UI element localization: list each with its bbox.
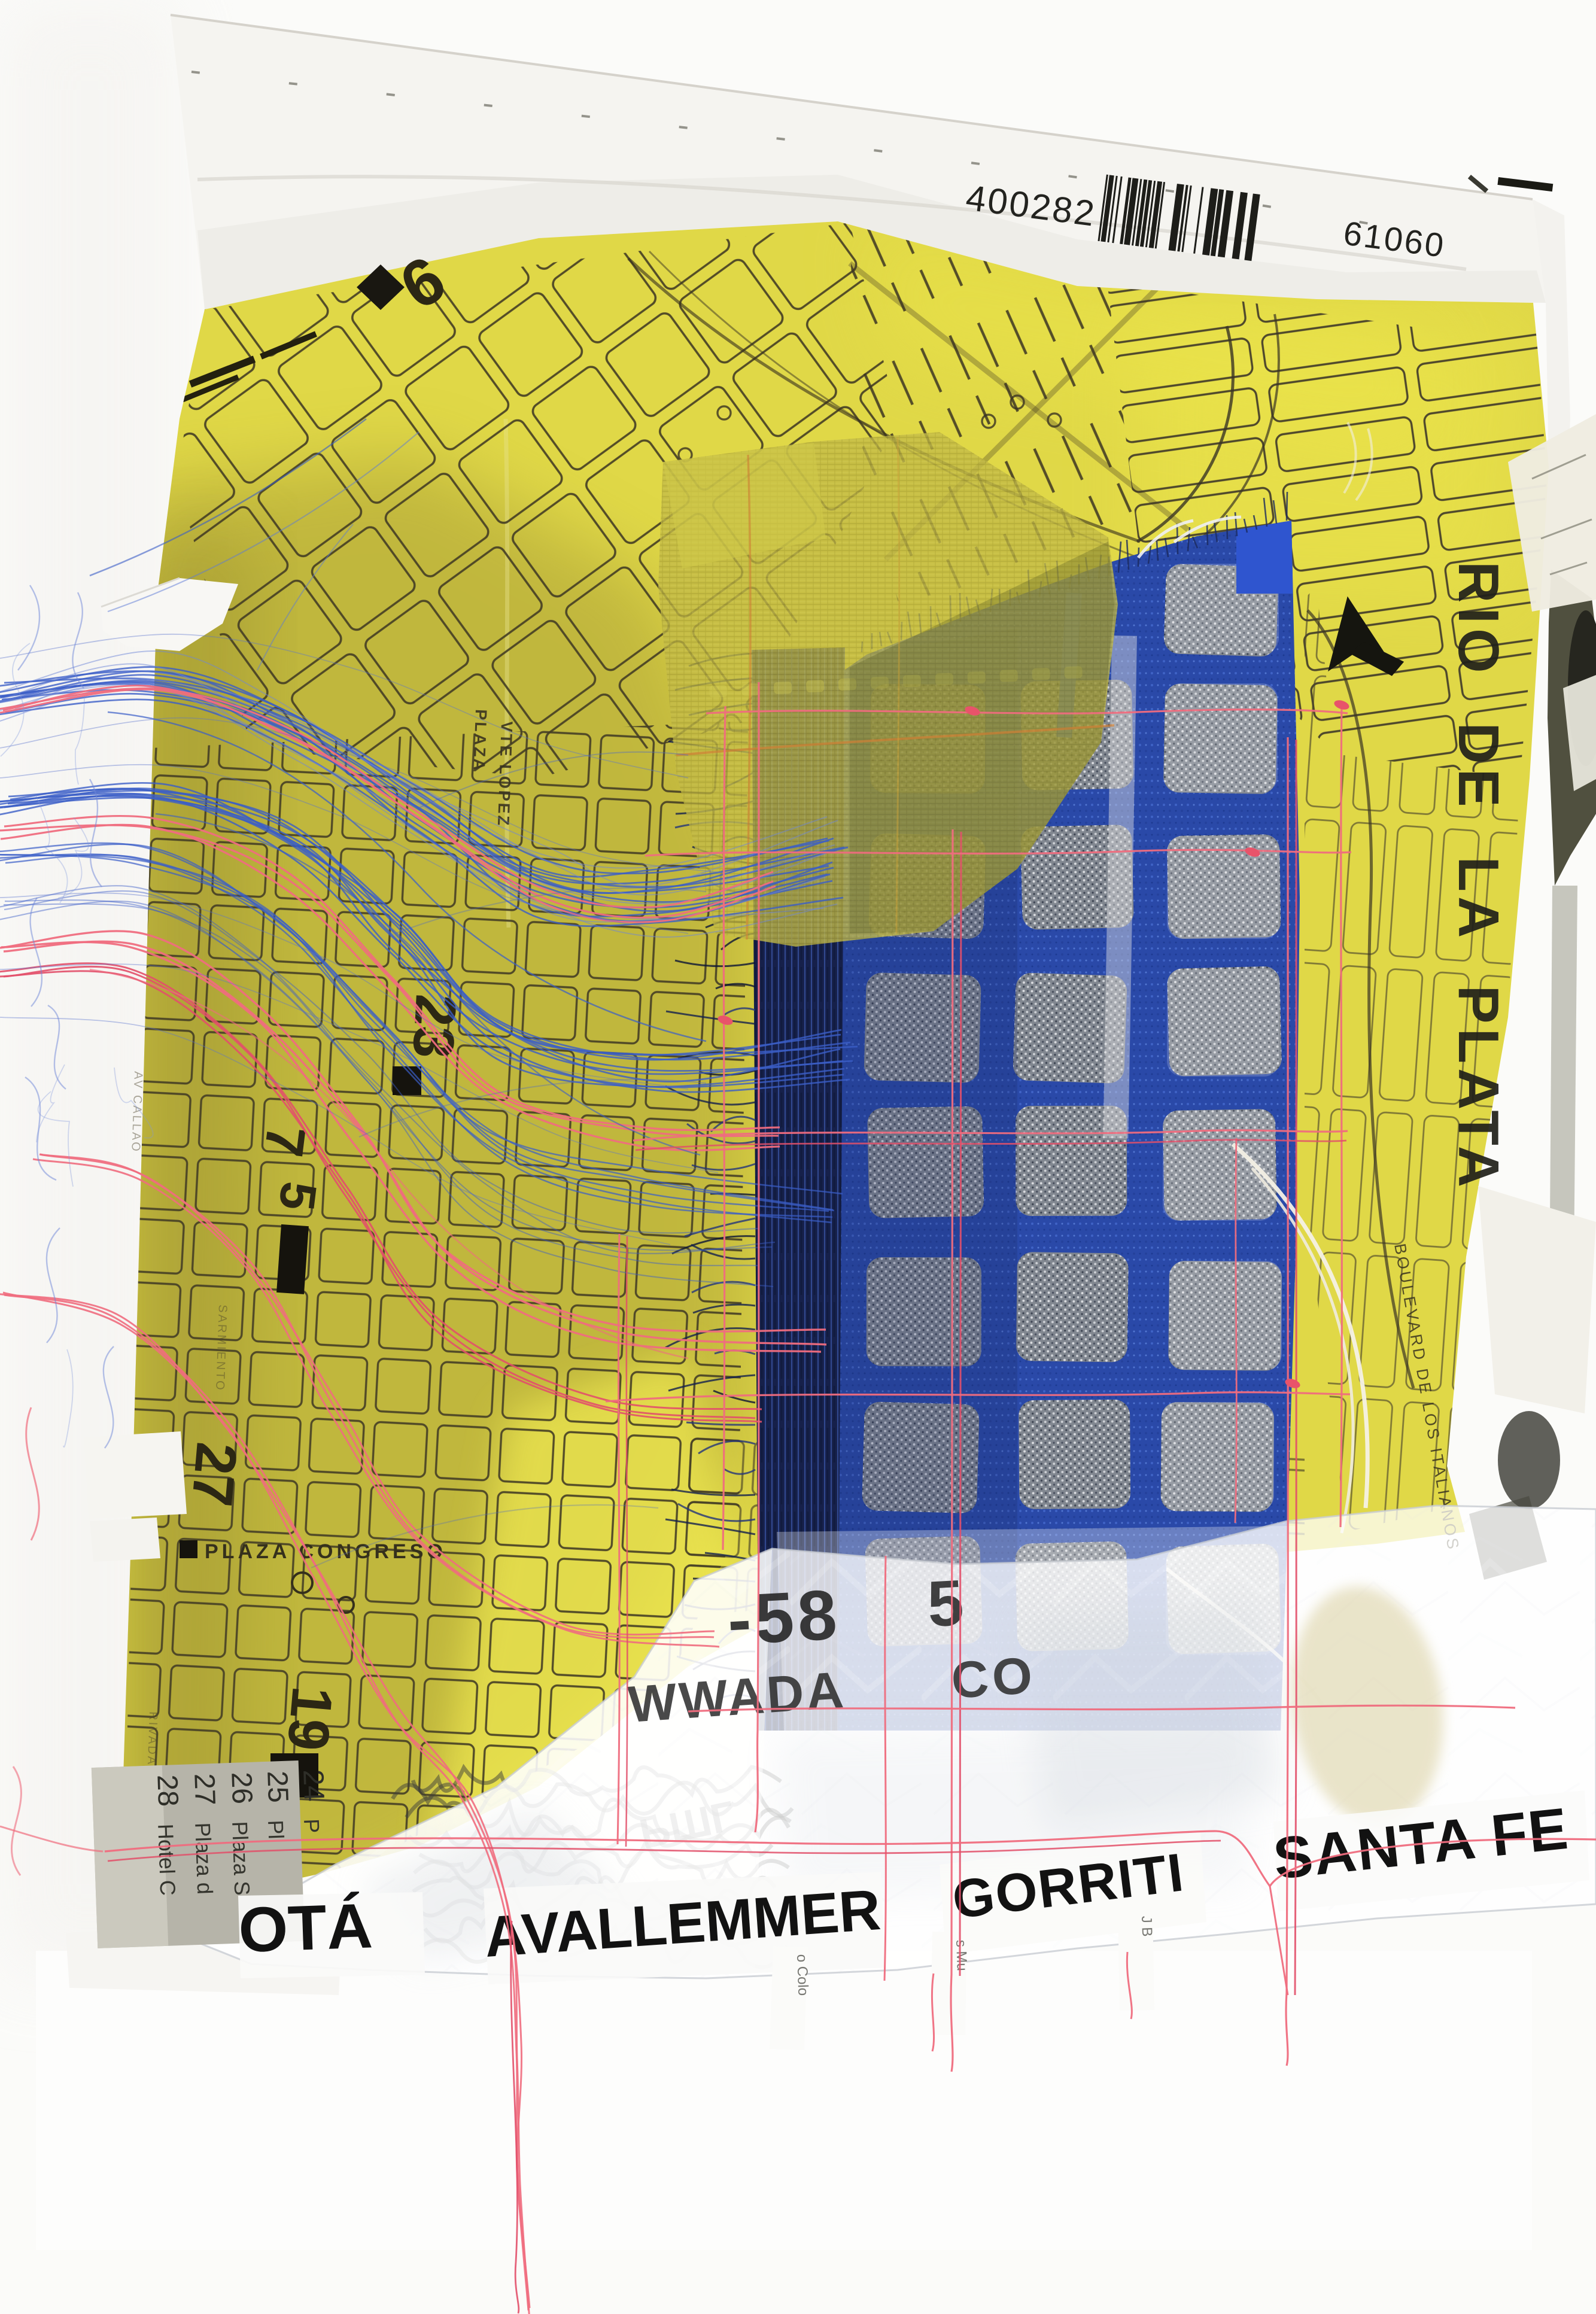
svg-text:-58: -58 [725, 1575, 842, 1660]
svg-text:24: 24 [297, 1769, 330, 1802]
svg-text:28: 28 [151, 1774, 184, 1807]
svg-text:s Mu: s Mu [953, 1939, 970, 1971]
svg-text:26: 26 [225, 1771, 258, 1804]
svg-text:19: 19 [275, 1684, 345, 1753]
svg-text:o Colo: o Colo [794, 1954, 811, 1996]
svg-text:Plaza d: Plaza d [190, 1822, 217, 1895]
svg-text:RIO DE LA PLATA: RIO DE LA PLATA [1446, 561, 1510, 1192]
svg-text:25: 25 [261, 1770, 294, 1803]
svg-text:PLAZA CONGRESO: PLAZA CONGRESO [205, 1540, 446, 1563]
svg-text:27: 27 [188, 1773, 221, 1806]
svg-text:Pl: Pl [263, 1820, 288, 1839]
svg-text:Hotel C: Hotel C [153, 1823, 180, 1896]
svg-text:Plaza S: Plaza S [227, 1821, 254, 1896]
svg-text:27: 27 [180, 1440, 249, 1509]
svg-text:P: P [299, 1819, 324, 1833]
svg-text:OTÁ: OTÁ [238, 1890, 374, 1966]
svg-text:J B: J B [1138, 1915, 1155, 1937]
svg-text:CO: CO [950, 1646, 1038, 1710]
